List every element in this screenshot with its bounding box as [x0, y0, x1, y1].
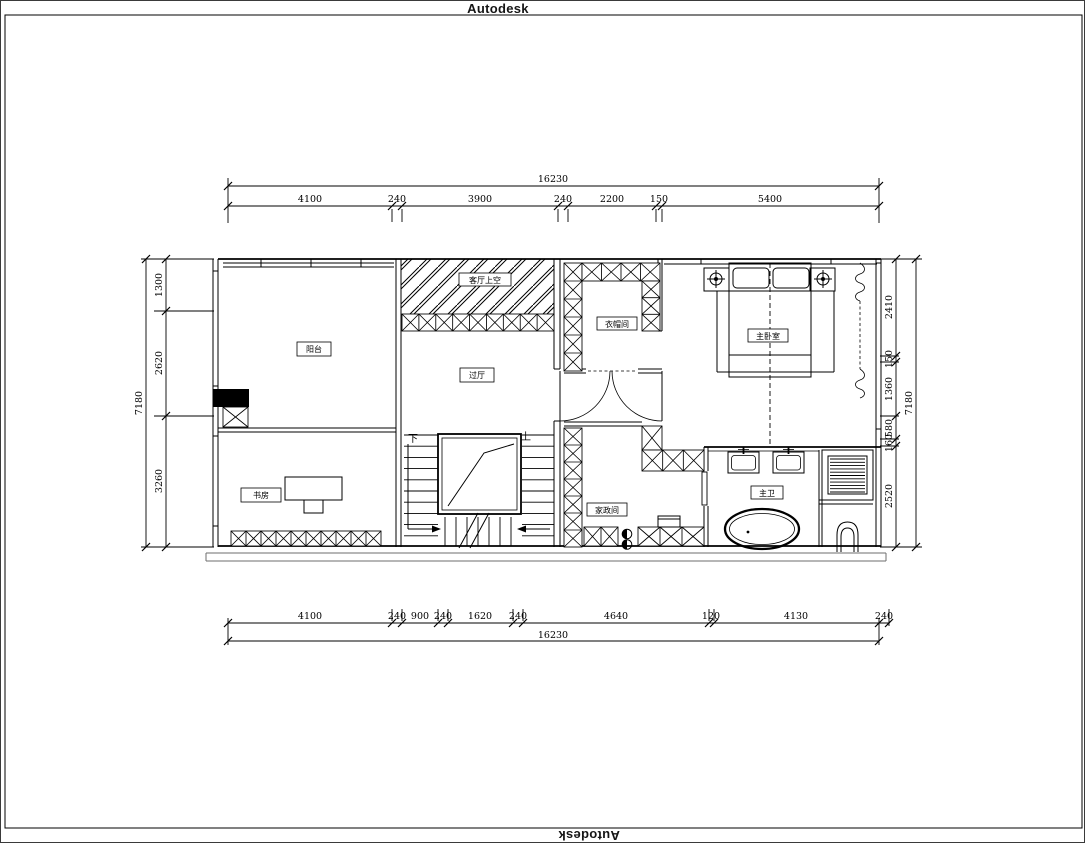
column-xbox: [223, 407, 248, 427]
svg-text:4100: 4100: [298, 611, 322, 622]
svg-text:1300: 1300: [154, 273, 165, 297]
stairs: [404, 434, 554, 548]
svg-text:150: 150: [650, 194, 668, 205]
bathroom: [725, 447, 873, 552]
dimension-top: 16230 4100 240 3900 240 2200 150 5400: [224, 174, 883, 223]
dim-top-overall: 16230: [538, 174, 568, 185]
dim-left-overall: 7180: [134, 391, 145, 415]
desk-chair: [304, 500, 323, 513]
svg-text:4640: 4640: [604, 611, 628, 622]
desk: [285, 477, 342, 513]
toilet: [837, 522, 858, 552]
svg-text:1620: 1620: [468, 611, 492, 622]
housekeeping-cabinet-corner: [642, 426, 662, 450]
room-label-master-bath: 主卫: [751, 486, 783, 499]
room-label-void: 客厅上空: [459, 273, 511, 286]
svg-text:1360: 1360: [884, 377, 895, 401]
bed: [704, 263, 835, 444]
svg-text:家政间: 家政间: [595, 505, 619, 515]
svg-text:2200: 2200: [600, 194, 624, 205]
bathtub: [725, 509, 799, 549]
bed-bench: [729, 355, 811, 377]
room-label-cloakroom: 衣帽间: [597, 317, 637, 330]
svg-text:240: 240: [388, 194, 406, 205]
svg-text:3900: 3900: [468, 194, 492, 205]
svg-text:240: 240: [509, 611, 527, 622]
curtain-symbol: [856, 263, 865, 398]
housekeeping-cabinet-bottom-right: [638, 527, 704, 546]
svg-text:书房: 书房: [253, 490, 269, 500]
svg-text:2520: 2520: [884, 484, 895, 508]
svg-text:阳台: 阳台: [306, 344, 322, 354]
lamp-icon: [707, 270, 725, 288]
dimension-bottom: 4100 240 900 240 1620 240 4640 120 4130 …: [224, 609, 893, 645]
svg-text:240: 240: [388, 611, 406, 622]
wardrobe-strip-void-edge: [402, 314, 554, 331]
svg-text:2620: 2620: [154, 351, 165, 375]
room-label-hall: 过厅: [460, 368, 494, 382]
column-filled: [213, 389, 249, 407]
shower: [819, 450, 873, 504]
void-hatch-area: [401, 259, 554, 314]
room-label-study: 书房: [241, 488, 281, 502]
sheet-frame: [5, 15, 1082, 828]
dim-bottom-overall: 16230: [538, 630, 568, 641]
dimension-right: 2410 150 1360 580 160 2520 7180: [880, 255, 922, 551]
housekeeping-cabinet-top: [642, 450, 704, 471]
svg-text:4130: 4130: [784, 611, 808, 622]
svg-text:900: 900: [411, 611, 429, 622]
dimension-left: 1300 2620 3260 7180: [134, 255, 214, 551]
svg-text:主卫: 主卫: [759, 488, 775, 498]
svg-text:衣帽间: 衣帽间: [605, 319, 629, 329]
floor-plan-canvas: 16230 4100 240 3900 240 2200 150 5400 41…: [1, 1, 1085, 843]
svg-text:4100: 4100: [298, 194, 322, 205]
drawing-sheet: Autodesk Autodesk 16230 4100 240 3900 24…: [0, 0, 1085, 843]
svg-text:240: 240: [554, 194, 572, 205]
housekeeping-cabinet-bottom-left: [584, 527, 618, 546]
stair-up-label: 上: [521, 431, 531, 443]
svg-text:主卧室: 主卧室: [756, 331, 780, 341]
stair-treads-right: [522, 435, 554, 536]
housekeeping-cabinet-left: [564, 428, 582, 547]
stair-treads-left: [404, 435, 438, 536]
svg-text:240: 240: [434, 611, 452, 622]
svg-text:2410: 2410: [884, 295, 895, 319]
study-bookshelf: [231, 531, 381, 546]
svg-text:客厅上空: 客厅上空: [469, 275, 501, 285]
cloakroom-wardrobe-left: [564, 263, 582, 371]
room-label-balcony: 阳台: [297, 342, 331, 356]
laundry-basin: [658, 516, 680, 527]
svg-text:150: 150: [884, 350, 895, 368]
door-arcs: [560, 371, 662, 421]
svg-text:3260: 3260: [154, 469, 165, 493]
room-label-master-bedroom: 主卧室: [748, 329, 788, 342]
cloakroom-wardrobe-right: [642, 281, 660, 331]
svg-text:过厅: 过厅: [469, 370, 485, 380]
svg-text:160: 160: [884, 434, 895, 452]
svg-text:5400: 5400: [758, 194, 782, 205]
stair-treads-bottom: [445, 517, 511, 546]
svg-text:120: 120: [702, 611, 720, 622]
lamp-icon: [814, 270, 832, 288]
pillow: [773, 268, 809, 288]
room-label-housekeeping: 家政间: [587, 503, 627, 516]
cloakroom-wardrobe-top: [582, 263, 660, 281]
stair-down-label: 下: [408, 434, 418, 445]
svg-text:240: 240: [875, 611, 893, 622]
dim-right-overall: 7180: [904, 391, 915, 415]
pillow: [733, 268, 769, 288]
